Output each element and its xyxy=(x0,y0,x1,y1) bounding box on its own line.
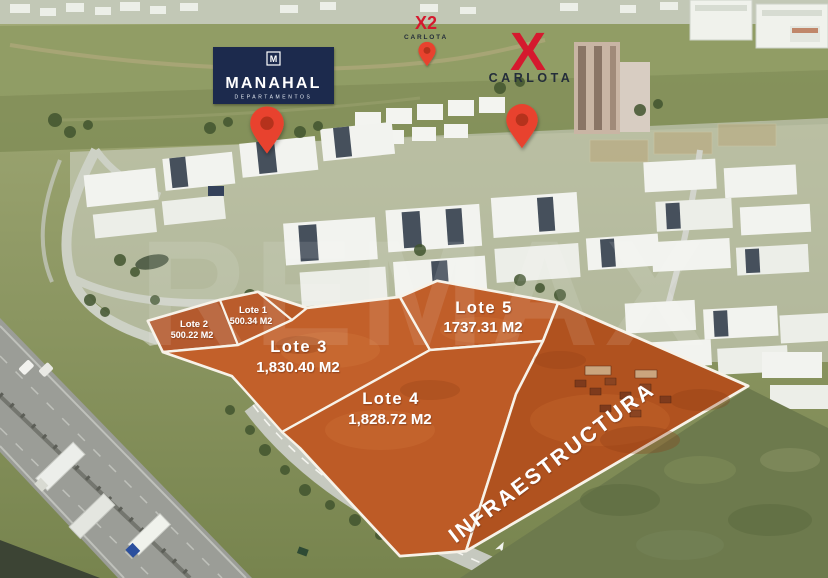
svg-text:1,830.40 M2: 1,830.40 M2 xyxy=(256,359,339,376)
svg-text:Lote 3: Lote 3 xyxy=(270,338,328,356)
svg-text:1737.31 M2: 1737.31 M2 xyxy=(443,319,522,336)
svg-text:Lote 2: Lote 2 xyxy=(180,319,208,330)
manahal-name: MANAHAL xyxy=(225,75,321,92)
manahal-subtitle: DEPARTAMENTOS xyxy=(235,95,313,101)
watermark-text: REMAX xyxy=(139,209,711,377)
svg-text:500.34 M2: 500.34 M2 xyxy=(230,316,273,326)
svg-text:500.22 M2: 500.22 M2 xyxy=(171,330,214,340)
svg-text:Lote 1: Lote 1 xyxy=(239,305,268,316)
manahal-logo: M MANAHAL DEPARTAMENTOS xyxy=(213,47,334,104)
aerial-photo: REMAX Lote 2 500.22 M2 Lote 1 500.34 M2 … xyxy=(0,0,828,578)
carlota-name: CARLOTA xyxy=(489,71,574,85)
svg-text:1,828.72 M2: 1,828.72 M2 xyxy=(348,411,431,428)
svg-text:Lote 4: Lote 4 xyxy=(362,390,420,408)
carlota-x2-mark: X2 xyxy=(415,13,437,33)
svg-text:M: M xyxy=(270,54,278,64)
svg-text:Lote 5: Lote 5 xyxy=(455,299,513,317)
carlota-x2-name: CARLOTA xyxy=(404,34,448,41)
